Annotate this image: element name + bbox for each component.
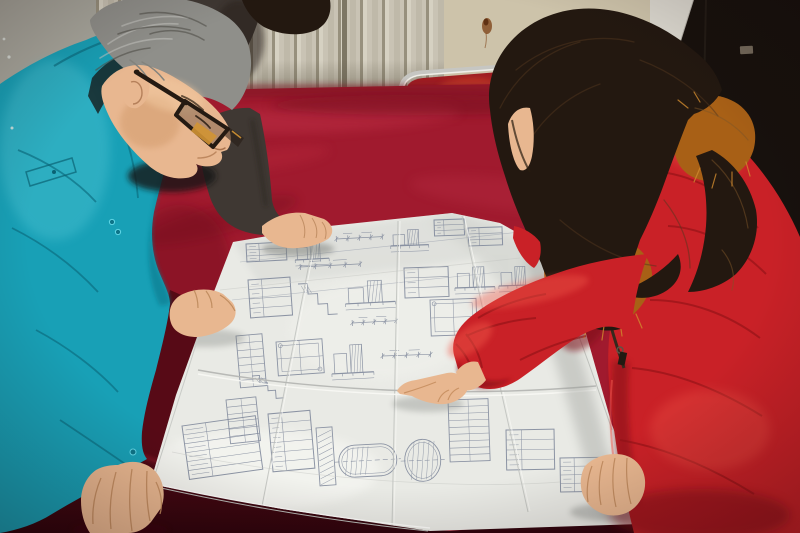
photo-scene [0,0,800,533]
scene-svg [0,0,800,533]
vignette [0,0,800,533]
